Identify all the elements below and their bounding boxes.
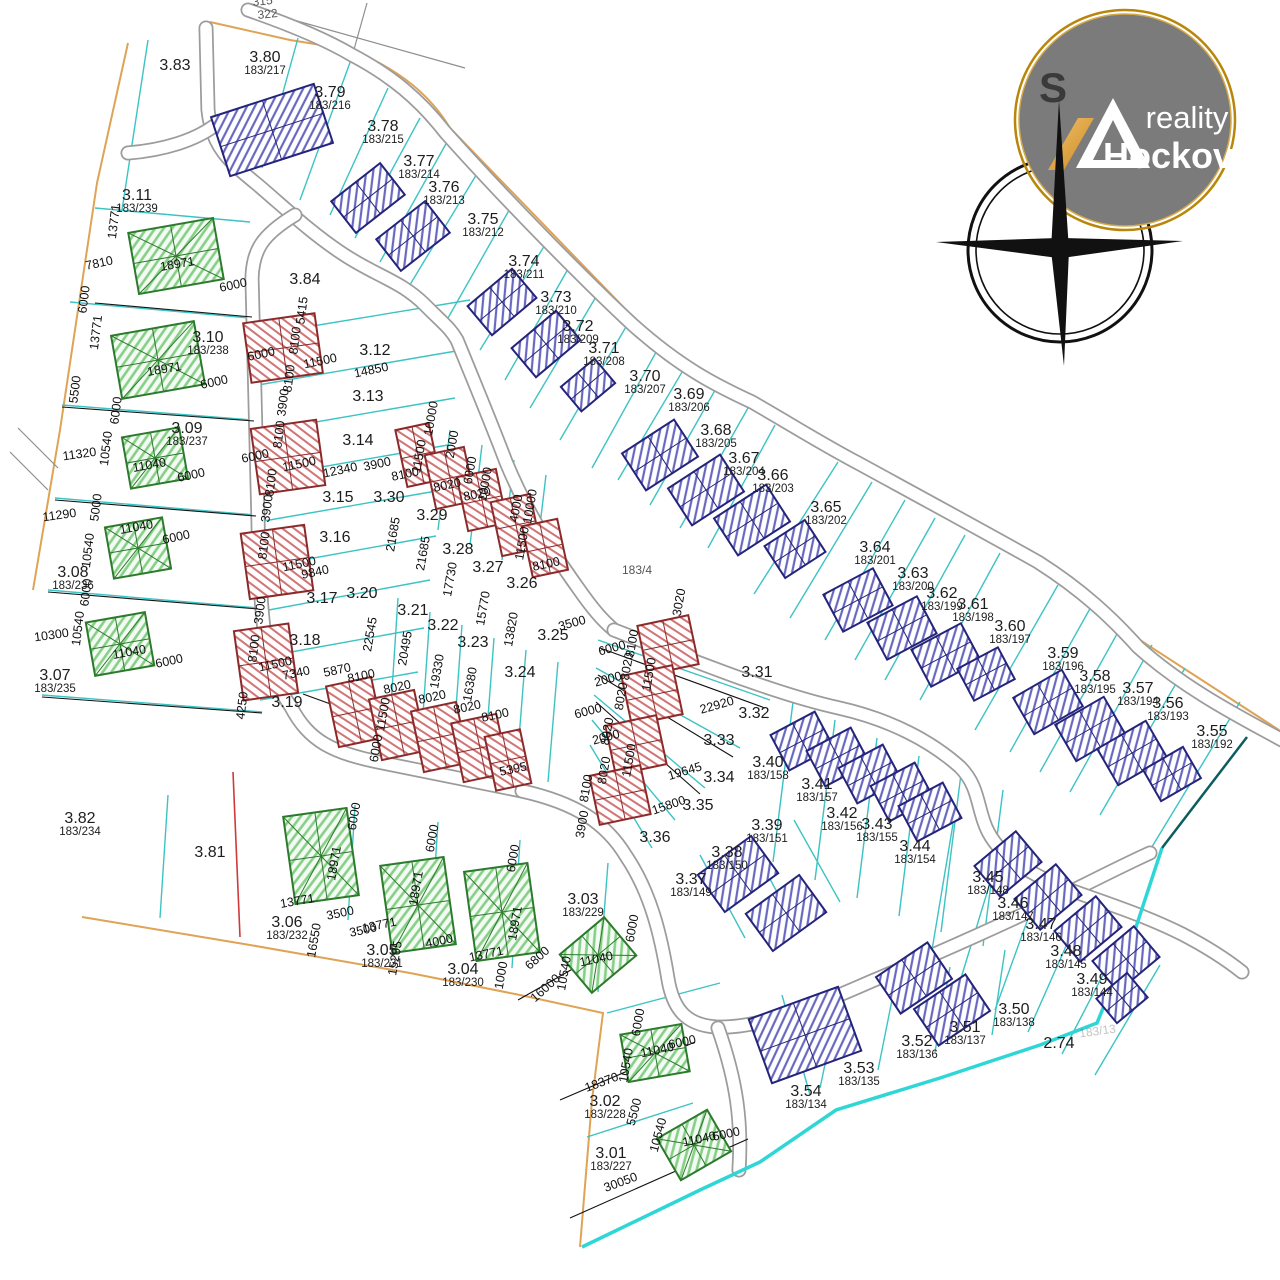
plot-number: 3.06 [271, 914, 302, 931]
dimension-label: 20495 [395, 630, 415, 667]
plot-label: 3.34 [703, 769, 734, 786]
parcel-division-line [122, 40, 148, 210]
dimension-label: 10000 [421, 400, 441, 437]
plot-label: 3.32 [738, 705, 769, 722]
plot-label: 3.23 [457, 634, 488, 651]
plot-number: 3.33 [703, 732, 734, 749]
plot-parcel-number: 183/232 [266, 930, 308, 942]
dimension-label: 5000 [87, 493, 104, 522]
plot-label: 3.58183/195 [1074, 668, 1116, 696]
dimension-label: 6000 [154, 651, 184, 670]
plot-parcel-number: 183/207 [624, 384, 666, 396]
dimension-label: 17730 [440, 561, 460, 598]
plot-label: 3.14 [342, 432, 373, 449]
plot-number: 3.29 [416, 507, 447, 524]
dimension-label: 7810 [84, 253, 114, 272]
parcel-division-line [55, 498, 255, 515]
cadastre-boundary-line [33, 43, 128, 590]
plot-label: 3.33 [703, 732, 734, 749]
plot-parcel-number: 183/205 [695, 438, 737, 450]
plot-parcel-number: 183/213 [423, 195, 465, 207]
dimension-label: 3020 [670, 587, 689, 617]
plot-number: 3.77 [403, 153, 434, 170]
plot-label: 3.09183/237 [166, 420, 208, 448]
plot-label: 3.77183/214 [398, 153, 440, 181]
dimension-label: 6000 [623, 913, 642, 943]
dimension-label: 21685 [413, 535, 433, 572]
plot-label: 3.31 [741, 664, 772, 681]
house-existing-green [111, 321, 205, 399]
dimension-label: 11320 [62, 445, 97, 464]
plot-label: 3.50183/138 [993, 1001, 1035, 1029]
plot-number: 3.67 [728, 450, 759, 467]
plot-label: 3.48183/145 [1045, 943, 1087, 971]
plot-number: 3.25 [537, 627, 568, 644]
plot-number: 3.21 [397, 602, 428, 619]
plot-parcel-number: 183/145 [1045, 959, 1087, 971]
plot-label: 3.59183/196 [1042, 645, 1084, 673]
plot-parcel-number: 183/215 [362, 134, 404, 146]
plot-number: 3.23 [457, 634, 488, 651]
plot-number: 3.31 [741, 664, 772, 681]
plot-label: 3.71183/208 [583, 340, 625, 368]
dimension-label: 1000 [492, 960, 511, 990]
plot-label: 3.73183/210 [535, 289, 577, 317]
plot-label: 3.40183/158 [747, 754, 789, 782]
plot-number: 3.47 [1025, 916, 1056, 933]
plot-parcel-number: 183/206 [668, 402, 710, 414]
plot-label: 3.30 [373, 489, 404, 506]
plot-parcel-number: 183/158 [747, 770, 789, 782]
dimension-label: 13771 [279, 891, 316, 911]
plot-label: 3.37183/149 [670, 871, 712, 899]
plot-parcel-number: 183/201 [854, 555, 896, 567]
plot-parcel-number: 183/231 [361, 958, 403, 970]
plot-label: 3.69183/206 [668, 386, 710, 414]
plot-number: 3.61 [957, 596, 988, 613]
plot-number: 3.62 [926, 585, 957, 602]
plot-parcel-number: 183/212 [462, 227, 504, 239]
plot-number: 3.45 [972, 869, 1003, 886]
parcel-division-line [548, 662, 558, 782]
plot-number: 3.42 [826, 805, 857, 822]
plot-label: 3.74183/211 [504, 253, 545, 281]
plot-label: 3.65183/202 [805, 499, 847, 527]
plot-parcel-number: 183/238 [187, 345, 229, 357]
plot-label: 3.17 [306, 590, 337, 607]
dimension-label: 3900 [274, 388, 291, 417]
plot-parcel-number: 183/210 [535, 305, 577, 317]
plot-label: 3.12 [359, 342, 390, 359]
plot-label: 3.84 [289, 271, 320, 288]
plot-number: 3.44 [899, 838, 930, 855]
plot-parcel-number: 183/149 [670, 887, 712, 899]
parcel-division-line [42, 695, 262, 712]
plot-number: 3.64 [859, 539, 890, 556]
plot-number: 3.84 [289, 271, 320, 288]
plot-number: 3.56 [1152, 695, 1183, 712]
compass-north-letter: S [1039, 64, 1067, 111]
plot-label: 2.74 [1043, 1035, 1074, 1052]
plot-label: 3.22 [427, 617, 458, 634]
site-plan-page: 1377178106000189716000137715500189716000… [0, 0, 1280, 1280]
plot-number: 3.68 [700, 422, 731, 439]
plot-number: 3.79 [314, 84, 345, 101]
cadastre-boundary-line [82, 917, 603, 1247]
plot-number: 3.78 [367, 118, 398, 135]
plot-label: 3.38183/150 [706, 844, 748, 872]
plot-label: 3.28 [442, 541, 473, 558]
plot-label: 3.20 [346, 585, 377, 602]
plot-label: 3.26 [506, 575, 537, 592]
cadastral-site-plan: 1377178106000189716000137715500189716000… [0, 0, 1280, 1280]
plot-label: 3.02183/228 [584, 1093, 626, 1121]
dimension-label: 14850 [353, 360, 390, 381]
plot-number: 2.74 [1043, 1035, 1074, 1052]
plot-number: 3.14 [342, 432, 373, 449]
plot-number: 3.36 [639, 829, 670, 846]
plot-label: 3.76183/213 [423, 179, 465, 207]
plot-parcel-number: 183/134 [785, 1099, 827, 1111]
plot-label: 3.13 [352, 388, 383, 405]
dimension-label: 21685 [383, 516, 403, 553]
plot-number: 3.27 [472, 559, 503, 576]
house-proposed-blue [376, 201, 449, 271]
dimension-label: 6000 [75, 285, 92, 314]
plot-number: 3.55 [1196, 723, 1227, 740]
plot-label: 3.21 [397, 602, 428, 619]
plot-label: 3.80183/217 [244, 49, 286, 77]
logo-text-reality: reality [1146, 100, 1229, 135]
small-map-label: 322 [257, 6, 279, 22]
plot-label: 3.55183/192 [1191, 723, 1233, 751]
plot-number: 3.17 [306, 590, 337, 607]
dimension-line [42, 697, 262, 713]
parcel-division-line [160, 795, 168, 918]
dimension-label: 6000 [573, 701, 604, 722]
plot-parcel-number: 183/229 [562, 907, 604, 919]
plot-label: 3.83 [159, 57, 190, 74]
plot-label: 3.79183/216 [309, 84, 351, 112]
plot-parcel-number: 183/195 [1074, 684, 1116, 696]
plot-label: 3.25 [537, 627, 568, 644]
plot-number: 3.02 [589, 1093, 620, 1110]
plot-label: 3.35 [682, 797, 713, 814]
plot-number: 3.41 [801, 776, 832, 793]
plot-number: 3.73 [540, 289, 571, 306]
plot-number: 3.37 [675, 871, 706, 888]
plot-label: 3.15 [322, 489, 353, 506]
plot-number: 3.46 [997, 895, 1028, 912]
plot-number: 3.38 [711, 844, 742, 861]
terrain-line [353, 3, 367, 53]
dimension-label: 15770 [473, 590, 493, 627]
dimension-label: 8100 [480, 705, 510, 724]
dimension-label: 3500 [325, 903, 355, 922]
logo-text-hockova: Hocková [1103, 135, 1254, 176]
plot-parcel-number: 183/138 [993, 1017, 1035, 1029]
plot-label: 3.52183/136 [896, 1033, 938, 1061]
plot-label: 3.70183/207 [624, 368, 666, 396]
plot-parcel-number: 183/234 [59, 826, 101, 838]
plot-number: 3.22 [427, 617, 458, 634]
plot-label: 3.44183/154 [894, 838, 936, 866]
plot-label: 3.01183/227 [590, 1145, 632, 1173]
dimension-label: 12340 [322, 460, 359, 481]
plot-number: 3.11 [122, 187, 152, 204]
plot-label: 3.18 [289, 632, 320, 649]
plot-number: 3.65 [810, 499, 841, 516]
plot-parcel-number: 183/155 [856, 832, 898, 844]
plot-number: 3.04 [447, 961, 478, 978]
plot-label: 3.61183/198 [952, 596, 994, 624]
plot-parcel-number: 183/154 [894, 854, 936, 866]
dimension-label: 19330 [427, 653, 447, 690]
compass-needle-south [1051, 250, 1069, 366]
plot-label: 3.45183/148 [967, 869, 1009, 897]
dimension-label: 13820 [501, 611, 521, 648]
plot-parcel-number: 183/192 [1191, 739, 1233, 751]
plot-number: 3.81 [194, 844, 225, 861]
plot-number: 3.05 [366, 942, 397, 959]
terrain-line [10, 452, 48, 490]
dimension-label: 19645 [666, 759, 703, 783]
plot-parcel-number: 183/197 [989, 634, 1031, 646]
plot-number: 3.63 [897, 565, 928, 582]
small-map-label: 183/4 [622, 563, 652, 577]
plot-label: 3.47183/146 [1020, 916, 1062, 944]
plot-number: 3.80 [249, 49, 280, 66]
plot-label: 3.05183/231 [361, 942, 403, 970]
plot-label: 3.82183/234 [59, 810, 101, 838]
plot-parcel-number: 183/135 [838, 1076, 880, 1088]
plot-parcel-number: 183/235 [34, 683, 76, 695]
plot-number: 3.26 [506, 575, 537, 592]
plot-number: 3.54 [790, 1083, 821, 1100]
plot-label: 3.06183/232 [266, 914, 308, 942]
plot-label: 3.11183/239 [116, 187, 158, 215]
plot-label: 3.29 [416, 507, 447, 524]
dimension-line [62, 407, 254, 421]
house-proposed-blue [331, 163, 404, 233]
plot-label: 3.07183/235 [34, 667, 76, 695]
plot-number: 3.01 [595, 1145, 626, 1162]
house-existing-green [128, 218, 223, 294]
plot-label: 3.64183/201 [854, 539, 896, 567]
plot-label: 3.27 [472, 559, 503, 576]
plot-number: 3.09 [171, 420, 202, 437]
plot-parcel-number: 183/216 [309, 100, 351, 112]
plot-label: 3.19 [271, 694, 302, 711]
plot-number: 3.59 [1047, 645, 1078, 662]
plot-number: 3.50 [998, 1001, 1029, 1018]
dimension-label: 22920 [698, 694, 735, 717]
plot-number: 3.72 [562, 318, 593, 335]
plot-parcel-number: 183/144 [1071, 987, 1113, 999]
plot-parcel-number: 183/202 [805, 515, 847, 527]
plot-number: 3.34 [703, 769, 734, 786]
dimension-label: 30050 [602, 1170, 639, 1195]
plot-parcel-number: 183/157 [796, 792, 838, 804]
plot-number: 3.15 [322, 489, 353, 506]
plot-parcel-number: 183/237 [166, 436, 208, 448]
dimension-label: 4250 [233, 691, 250, 720]
plot-number: 3.43 [861, 816, 892, 833]
plot-label: 3.39183/151 [746, 817, 788, 845]
plot-label: 3.03183/229 [562, 891, 604, 919]
plot-label: 3.16 [319, 529, 350, 546]
plot-number: 3.30 [373, 489, 404, 506]
plot-number: 3.39 [751, 817, 782, 834]
plot-number: 3.51 [949, 1019, 980, 1036]
plot-parcel-number: 183/137 [944, 1035, 986, 1047]
dimension-line [55, 500, 256, 516]
dimension-label: 10540 [69, 610, 87, 646]
dimension-label: 8100 [577, 773, 596, 803]
small-map-label: 183/13 [1078, 1022, 1117, 1041]
plot-number: 3.35 [682, 797, 713, 814]
dimension-label: 6000 [423, 823, 442, 853]
plot-number: 3.83 [159, 57, 190, 74]
brand-logo: reality Hocková S [1015, 10, 1254, 230]
plot-parcel-number: 183/198 [952, 612, 994, 624]
plot-number: 3.58 [1079, 668, 1110, 685]
plot-number: 3.13 [352, 388, 383, 405]
plot-number: 3.07 [39, 667, 70, 684]
plot-number: 3.70 [629, 368, 660, 385]
plot-number: 3.74 [508, 253, 539, 270]
plot-label: 3.36 [639, 829, 670, 846]
plot-label: 3.24 [504, 664, 535, 681]
dimension-label: 6000 [161, 527, 191, 546]
plot-parcel-number: 183/203 [752, 483, 794, 495]
dimension-label: 6000 [345, 801, 364, 831]
plot-number: 3.76 [428, 179, 459, 196]
plot-label: 3.54183/134 [785, 1083, 827, 1111]
plot-number: 3.40 [752, 754, 783, 771]
plot-parcel-number: 183/211 [504, 269, 545, 281]
plot-label: 3.10183/238 [187, 329, 229, 357]
dimension-label: 6000 [107, 396, 124, 425]
plot-number: 3.82 [64, 810, 95, 827]
plot-label: 3.78183/215 [362, 118, 404, 146]
plot-label: 3.42183/156 [821, 805, 863, 833]
plot-parcel-number: 183/208 [583, 356, 625, 368]
compass-needle-west [936, 238, 1058, 258]
plot-parcel-number: 183/236 [52, 580, 94, 592]
plot-label: 3.08183/236 [52, 564, 94, 592]
dimension-label: 18370 [583, 1070, 620, 1095]
plot-parcel-number: 183/196 [1042, 661, 1084, 673]
plot-parcel-number: 183/227 [590, 1161, 632, 1173]
terrain-line [18, 428, 58, 468]
plot-parcel-number: 183/136 [896, 1049, 938, 1061]
plot-label: 3.41183/157 [796, 776, 838, 804]
plot-parcel-number: 183/193 [1147, 711, 1189, 723]
plot-number: 3.60 [994, 618, 1025, 635]
plot-number: 3.52 [901, 1033, 932, 1050]
plot-number: 3.28 [442, 541, 473, 558]
dimension-label: 10540 [97, 430, 115, 466]
plot-label: 3.51183/137 [944, 1019, 986, 1047]
dimension-label: 13771 [87, 314, 105, 350]
plot-label: 3.04183/230 [442, 961, 484, 989]
plot-label: 3.53183/135 [838, 1060, 880, 1088]
plot-label: 3.81 [194, 844, 225, 861]
plot-label: 3.66183/203 [752, 467, 794, 495]
plot-parcel-number: 183/217 [244, 65, 286, 77]
plot-number: 3.03 [567, 891, 598, 908]
plot-parcel-number: 183/230 [442, 977, 484, 989]
plot-label: 3.43183/155 [856, 816, 898, 844]
plot-number: 3.49 [1076, 971, 1107, 988]
dimension-label: 3900 [362, 454, 392, 473]
plot-label: 3.75183/212 [462, 211, 504, 239]
plot-parcel-number: 183/239 [116, 203, 158, 215]
parcel-division-line [62, 405, 252, 420]
plot-number: 3.20 [346, 585, 377, 602]
plot-parcel-number: 183/228 [584, 1109, 626, 1121]
plot-number: 3.57 [1122, 680, 1153, 697]
plot-number: 3.48 [1050, 943, 1081, 960]
dimension-label: 22545 [360, 616, 380, 653]
plot-number: 3.75 [467, 211, 498, 228]
dimension-line [95, 303, 252, 317]
plot-number: 3.66 [757, 467, 788, 484]
plot-number: 3.16 [319, 529, 350, 546]
plot-number: 3.71 [588, 340, 619, 357]
plot-label: 3.49183/144 [1071, 971, 1113, 999]
plot-number: 3.69 [673, 386, 704, 403]
plot-number: 3.24 [504, 664, 535, 681]
plot-number: 3.10 [192, 329, 223, 346]
plot-number: 3.08 [57, 564, 88, 581]
plot-number: 3.53 [843, 1060, 874, 1077]
dimension-label: 5500 [624, 1097, 645, 1128]
plot-number: 3.18 [289, 632, 320, 649]
plot-label: 3.56183/193 [1147, 695, 1189, 723]
plot-number: 3.19 [271, 694, 302, 711]
plot-parcel-number: 183/150 [706, 860, 748, 872]
red-boundary-line [233, 772, 240, 937]
dimension-label: 10300 [33, 626, 69, 645]
plot-label: 3.68183/205 [695, 422, 737, 450]
compass-needle-east [1062, 238, 1183, 258]
plot-number: 3.12 [359, 342, 390, 359]
plot-label: 3.60183/197 [989, 618, 1031, 646]
dimension-label: 5500 [66, 375, 83, 404]
plot-parcel-number: 183/151 [746, 833, 788, 845]
plot-number: 3.32 [738, 705, 769, 722]
